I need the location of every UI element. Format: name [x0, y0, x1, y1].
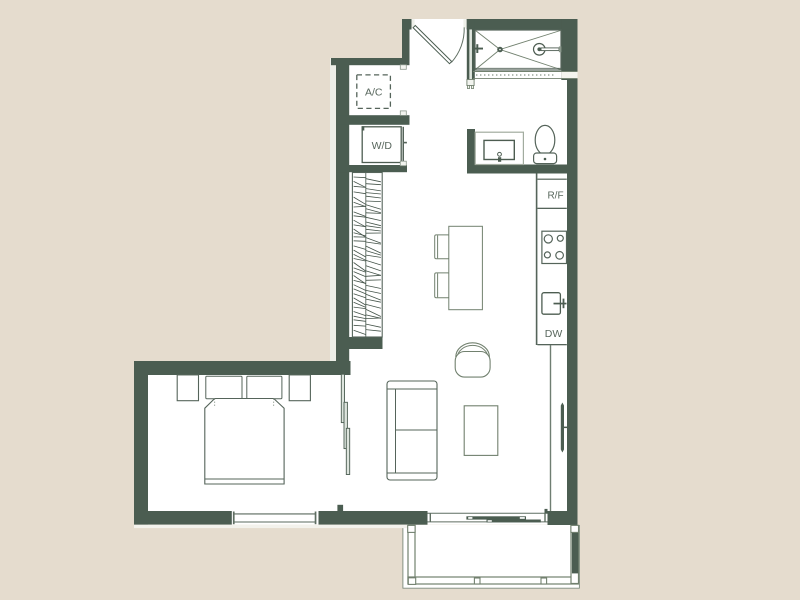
svg-text:DW: DW [545, 328, 563, 340]
svg-text:R/F: R/F [547, 190, 563, 201]
svg-text:A/C: A/C [365, 86, 383, 98]
svg-text:W/D: W/D [372, 140, 393, 152]
